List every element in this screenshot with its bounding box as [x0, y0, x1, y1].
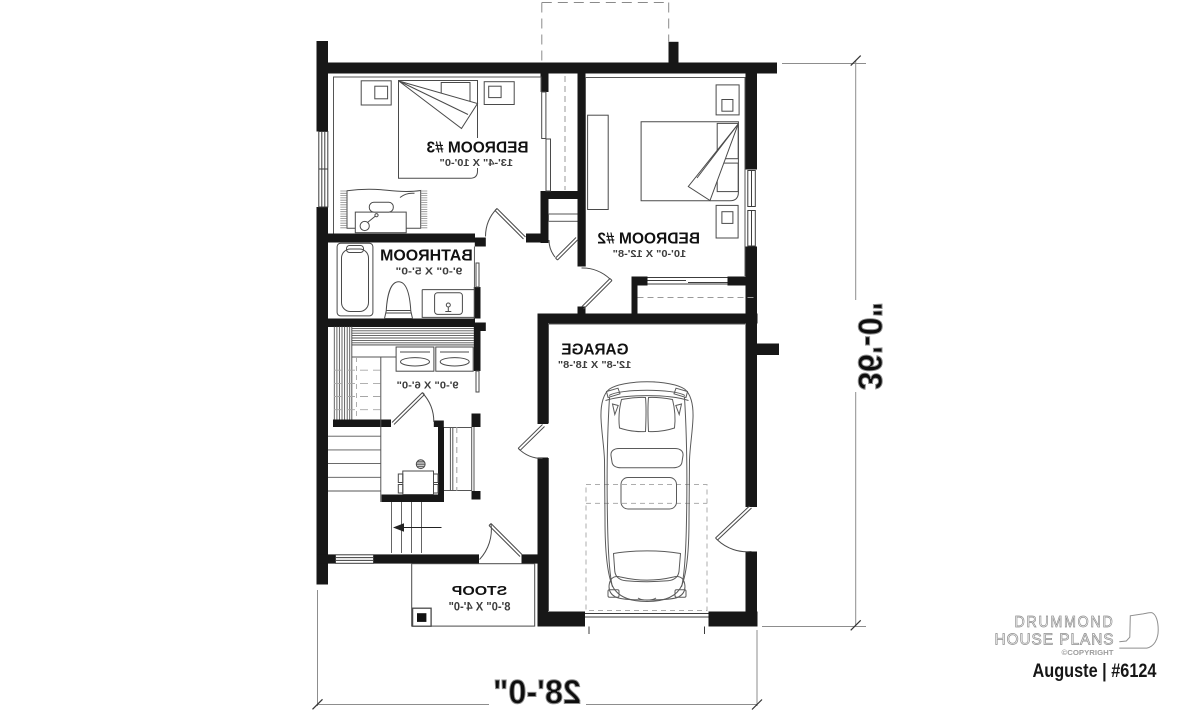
- svg-text:28'-0": 28'-0": [493, 674, 581, 711]
- svg-text:Auguste | #6124: Auguste | #6124: [1033, 661, 1157, 682]
- svg-text:STOOP: STOOP: [451, 583, 507, 598]
- svg-text:BEDROOM #3: BEDROOM #3: [426, 140, 528, 157]
- svg-text:BEDROOM #2: BEDROOM #2: [597, 230, 700, 247]
- svg-text:GARAGE: GARAGE: [561, 341, 628, 358]
- svg-text:HOUSE PLANS: HOUSE PLANS: [995, 631, 1115, 648]
- svg-text:9'-0" X 5'-0": 9'-0" X 5'-0": [396, 266, 463, 278]
- svg-text:10'-0" X 12'-8": 10'-0" X 12'-8": [613, 248, 686, 260]
- svg-text:13'-4" X 10'-0": 13'-4" X 10'-0": [440, 157, 514, 169]
- svg-text:8'-0" X 4'-0": 8'-0" X 4'-0": [449, 600, 511, 614]
- svg-text:9'-0" X 6'-0": 9'-0" X 6'-0": [397, 379, 459, 391]
- svg-text:12'-8" X 18'-8": 12'-8" X 18'-8": [558, 359, 631, 371]
- svg-text:BATHROOM: BATHROOM: [380, 247, 473, 264]
- svg-text:DRUMMOND: DRUMMOND: [1015, 614, 1115, 631]
- svg-text:©COPYRIGHT: ©COPYRIGHT: [1062, 649, 1115, 657]
- svg-text:36'-0": 36'-0": [851, 302, 889, 390]
